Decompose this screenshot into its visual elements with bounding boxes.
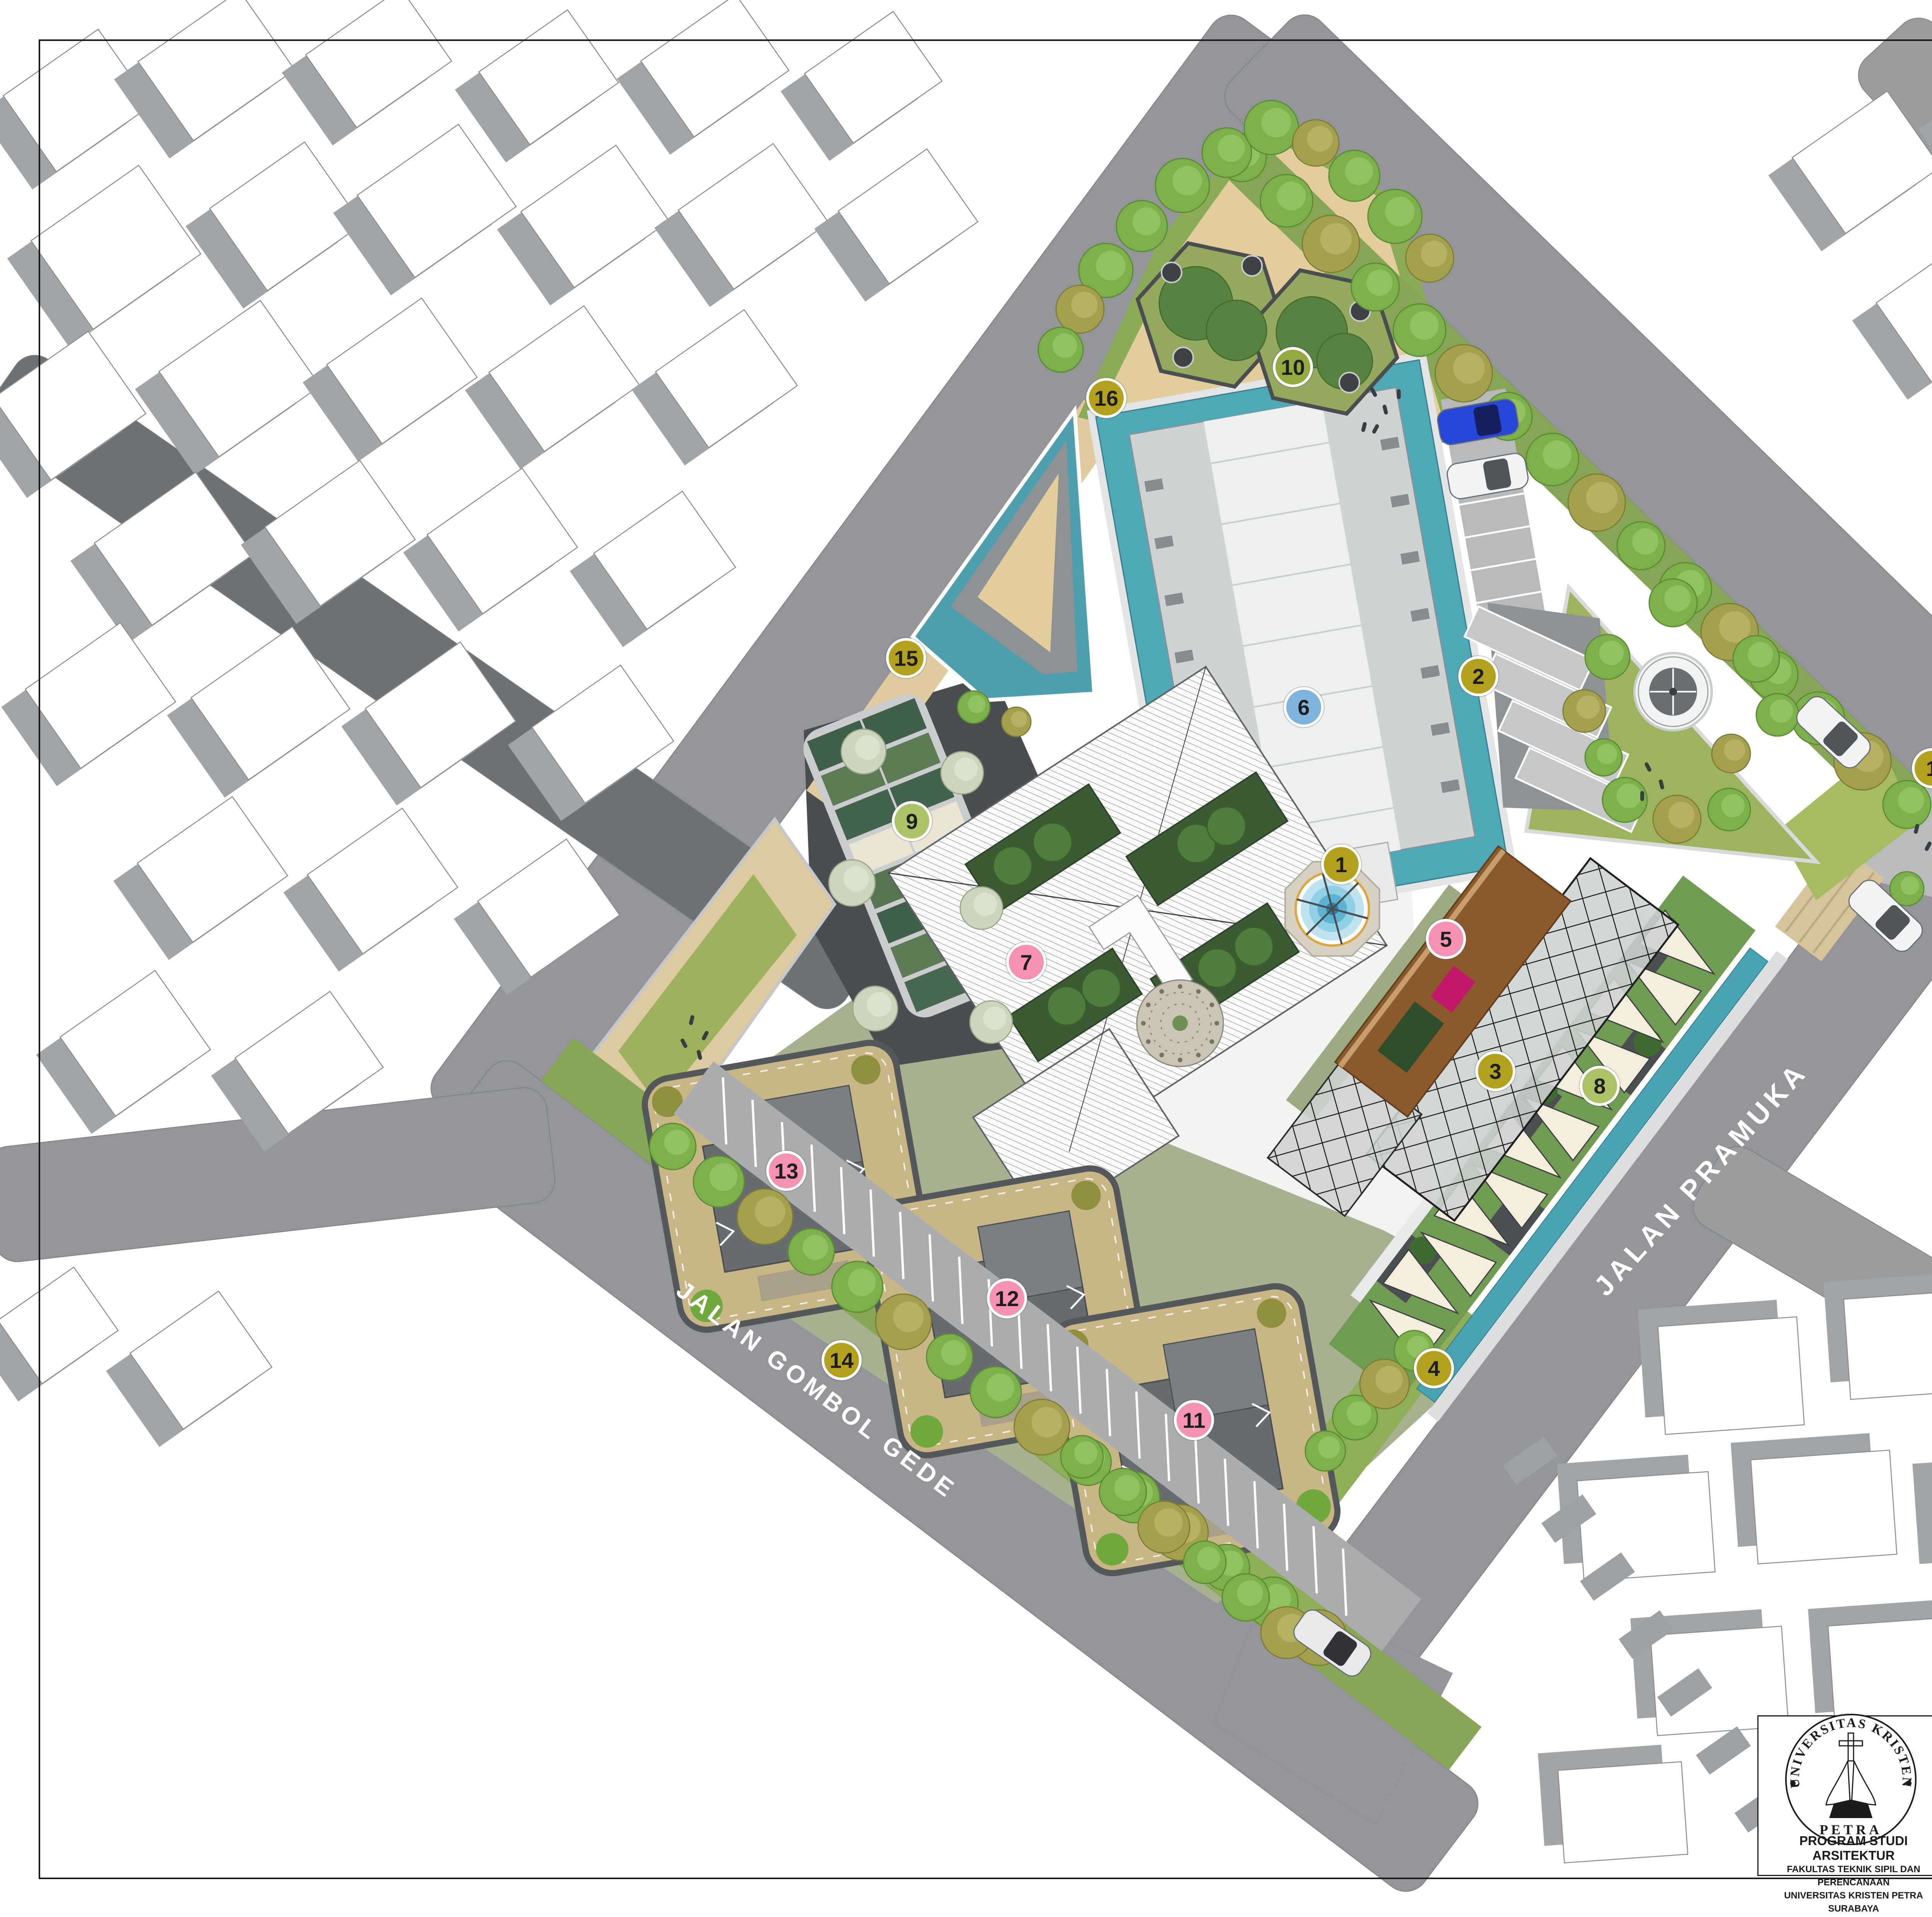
org-line2: FAKULTAS TEKNIK SIPIL DAN PERENCANAAN	[1759, 1863, 1932, 1889]
sheet: { "sheet": {"background": "#ffffff", "fr…	[0, 0, 1932, 1917]
marker-10: 10	[1273, 347, 1313, 387]
marker-15: 15	[886, 638, 926, 678]
marker-6: 6	[1284, 687, 1324, 727]
marker-7: 7	[1006, 942, 1046, 982]
marker-13: 13	[766, 1151, 806, 1191]
marker-1: 1	[1321, 844, 1361, 885]
marker-5: 5	[1426, 919, 1466, 959]
site-plan-drawing	[0, 0, 1932, 1917]
org-line3: UNIVERSITAS KRISTEN PETRA	[1759, 1889, 1932, 1902]
marker-3: 3	[1475, 1051, 1515, 1091]
marker-8: 8	[1580, 1066, 1620, 1106]
marker-11: 11	[1174, 1400, 1214, 1440]
marker-16: 16	[1086, 378, 1126, 418]
org-line1: PROGRAM STUDI ARSITEKTUR	[1759, 1834, 1932, 1863]
marker-2: 2	[1458, 656, 1498, 696]
marker-12: 12	[987, 1278, 1027, 1318]
university-logo: UNIVERSITAS KRISTEN PETRA	[1781, 1710, 1920, 1849]
org-line4: SURABAYA	[1759, 1902, 1932, 1915]
org-text: PROGRAM STUDI ARSITEKTUR FAKULTAS TEKNIK…	[1759, 1834, 1932, 1915]
marker-9: 9	[892, 801, 932, 841]
marker-14: 14	[821, 1340, 862, 1380]
marker-4: 4	[1414, 1348, 1454, 1388]
